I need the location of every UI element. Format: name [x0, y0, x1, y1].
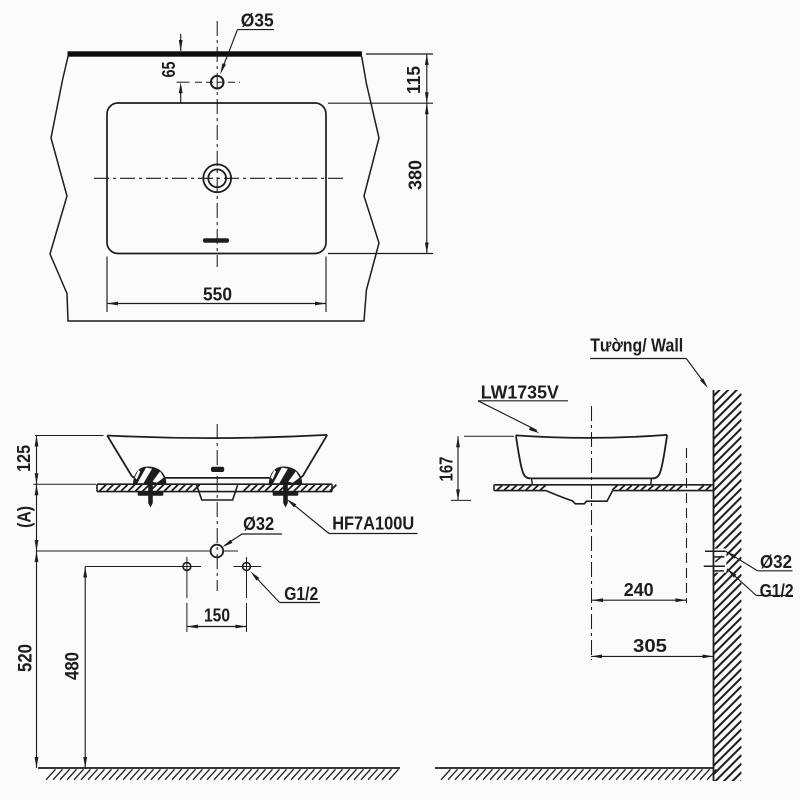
svg-text:150: 150	[204, 606, 230, 626]
svg-text:Ø32: Ø32	[243, 514, 274, 534]
svg-text:Tường/ Wall: Tường/ Wall	[590, 335, 683, 355]
svg-text:G1/2: G1/2	[760, 581, 794, 601]
svg-text:115: 115	[404, 66, 424, 94]
svg-text:520: 520	[16, 644, 37, 672]
svg-text:550: 550	[203, 285, 232, 305]
svg-text:167: 167	[436, 457, 456, 482]
svg-text:480: 480	[63, 652, 84, 680]
svg-text:LW1735V: LW1735V	[481, 382, 559, 402]
svg-text:Ø32: Ø32	[760, 552, 792, 572]
svg-text:305: 305	[633, 636, 667, 656]
svg-text:240: 240	[624, 580, 654, 600]
svg-text:G1/2: G1/2	[284, 584, 318, 604]
svg-text:125: 125	[14, 445, 34, 472]
svg-text:380: 380	[405, 160, 425, 190]
svg-text:Ø35: Ø35	[241, 11, 274, 31]
svg-text:65: 65	[159, 62, 179, 78]
svg-text:HF7A100U: HF7A100U	[332, 514, 414, 534]
svg-text:(A): (A)	[15, 506, 35, 528]
